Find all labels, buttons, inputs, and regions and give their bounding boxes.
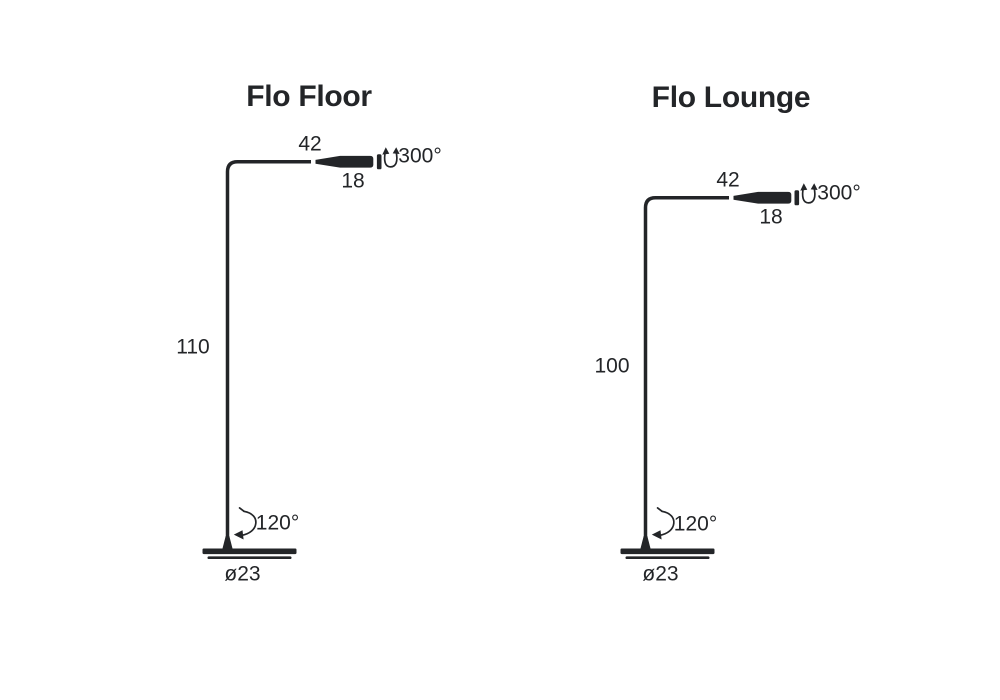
dimension-diagram: Flo Floor 42 18 300° 110 120° ø23 Flo Lo… bbox=[0, 0, 1000, 700]
floor-rotation-300-icon bbox=[382, 147, 399, 167]
floor-pole-and-arm bbox=[228, 162, 312, 537]
floor-pole-height-label: 110 bbox=[176, 337, 209, 358]
lounge-rotation-120-icon bbox=[652, 508, 674, 540]
lounge-head-aperture-icon bbox=[795, 190, 800, 205]
lounge-base-plate bbox=[621, 549, 715, 555]
lounge-rotation-300-icon bbox=[800, 183, 817, 203]
lounge-pole-height-label: 100 bbox=[594, 355, 629, 376]
floor-head-depth-label: 18 bbox=[341, 170, 364, 191]
lounge-base-diameter-label: ø23 bbox=[642, 563, 678, 584]
floor-base-plate-edge bbox=[208, 556, 292, 559]
flo-lounge-title: Flo Lounge bbox=[652, 83, 811, 113]
floor-arm-length-label: 42 bbox=[298, 133, 321, 154]
lamp-line-art bbox=[0, 0, 1000, 700]
floor-base-rotation-label: 120° bbox=[256, 513, 299, 534]
lounge-stem-foot bbox=[641, 536, 651, 549]
floor-rotation-120-icon bbox=[234, 508, 256, 540]
floor-base-plate bbox=[203, 549, 297, 555]
floor-head-aperture-icon bbox=[377, 154, 382, 169]
lounge-pole-and-arm bbox=[646, 198, 730, 537]
floor-head-rotation-label: 300° bbox=[398, 146, 441, 167]
lounge-lamp-head bbox=[734, 192, 792, 204]
flo-floor-title: Flo Floor bbox=[246, 82, 372, 112]
floor-base-diameter-label: ø23 bbox=[224, 563, 260, 584]
lounge-arm-length-label: 42 bbox=[716, 169, 739, 190]
lounge-head-rotation-label: 300° bbox=[817, 183, 860, 204]
flo-lounge-drawing bbox=[621, 183, 818, 559]
flo-floor-drawing bbox=[203, 147, 400, 559]
lounge-base-rotation-label: 120° bbox=[674, 513, 717, 534]
lounge-base-plate-edge bbox=[626, 556, 710, 559]
floor-stem-foot bbox=[223, 536, 233, 549]
lounge-head-depth-label: 18 bbox=[759, 206, 782, 227]
floor-lamp-head bbox=[316, 156, 374, 168]
